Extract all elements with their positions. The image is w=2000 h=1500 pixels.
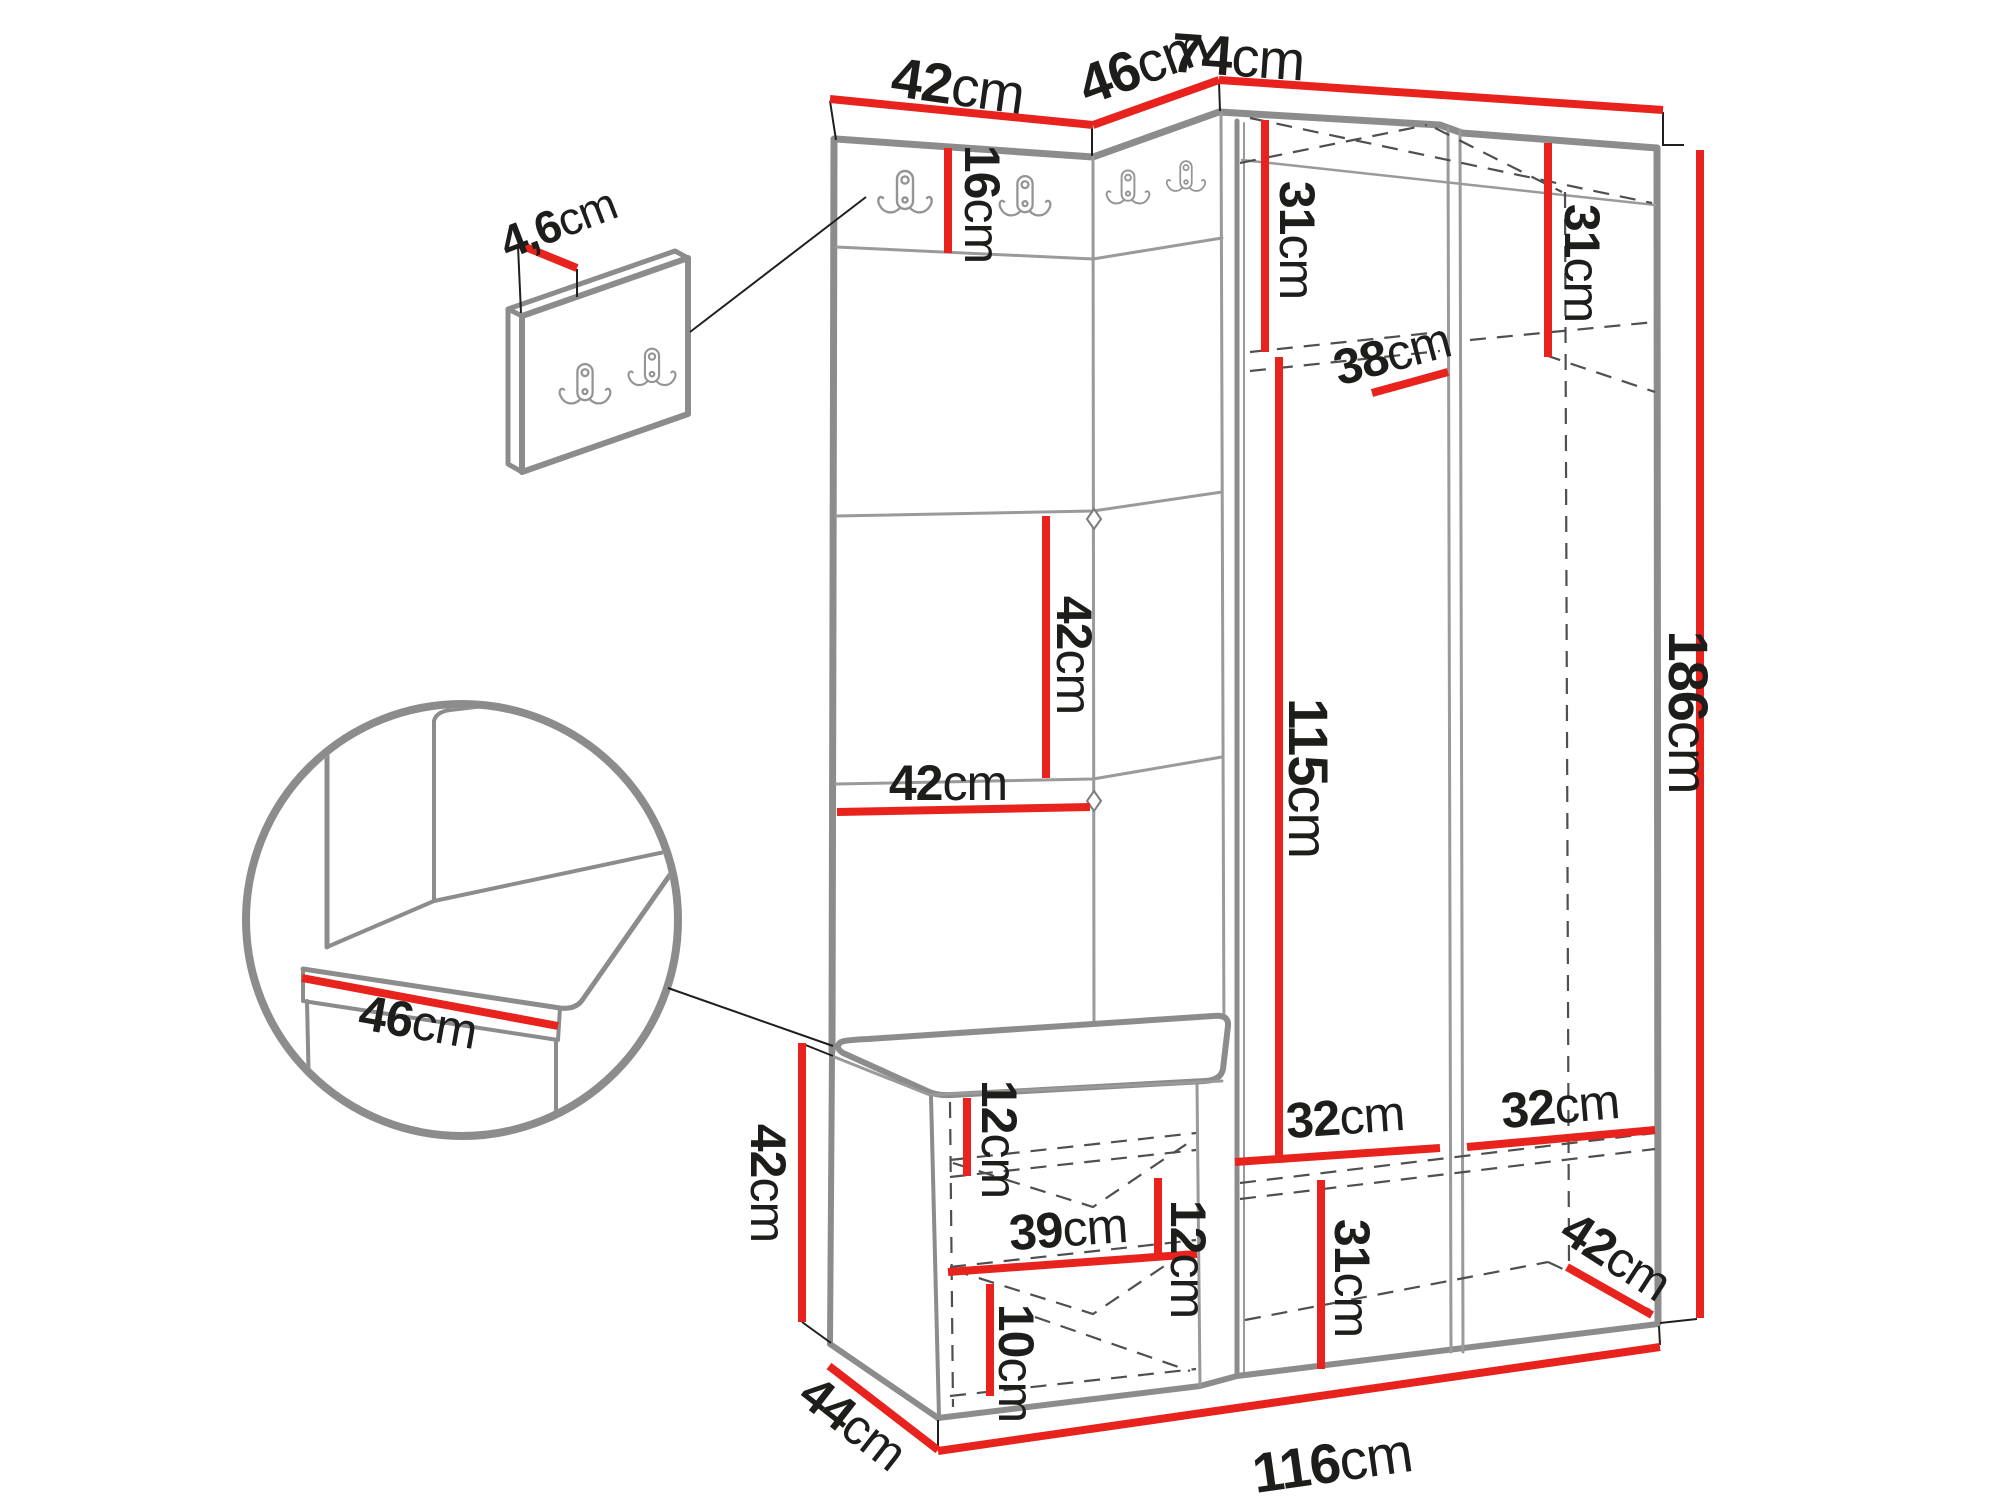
dimension-label-total-width: 116cm xyxy=(1248,1420,1415,1500)
dimension-label-hook-board-thickness: 4,6cm xyxy=(493,177,624,269)
corner-panel-right-edge xyxy=(1221,114,1224,1046)
dimension-label-bottom-left-width: 32cm xyxy=(1284,1085,1406,1149)
bench-hidden-floor-diagonal xyxy=(1035,1317,1190,1371)
hidden-shelf-right-top xyxy=(1470,322,1655,340)
coat-hook-icon xyxy=(1167,161,1205,191)
dimension-label-seat-shelf-offset: 12cm xyxy=(971,1080,1027,1198)
dimension-line-bottom-left-width xyxy=(1235,1148,1440,1162)
bench-left-back-edge xyxy=(830,1053,832,1344)
hidden-shelf-right-back xyxy=(1545,355,1655,392)
dimension-label-wardrobe-top-width: 74cm xyxy=(1169,20,1306,92)
dimension-label-hook-strip-height: 16cm xyxy=(954,145,1010,263)
dimension-label-hanging-height: 115cm xyxy=(1278,698,1341,858)
dimension-label-panel-tile-height: 42cm xyxy=(1046,596,1102,714)
detail-circle xyxy=(246,704,678,1136)
coat-hook-icon xyxy=(1107,170,1150,203)
callout-line xyxy=(690,197,866,332)
coat-hook-icon xyxy=(878,171,931,212)
dimension-label-bottom-right-width: 32cm xyxy=(1499,1073,1622,1139)
door-gap-right xyxy=(1460,130,1463,1352)
door-gap-left xyxy=(1448,128,1451,1352)
dimension-label-panel-top-width: 42cm xyxy=(888,45,1028,126)
dimension-label-total-height: 186cm xyxy=(1658,630,1721,793)
wardrobe-bottom-edge xyxy=(1237,1324,1658,1376)
dimension-label-bench-bottom-height: 10cm xyxy=(988,1304,1044,1422)
bench-hidden-vertical xyxy=(950,1102,953,1407)
dimension-label-bench-inner-width: 39cm xyxy=(1007,1197,1129,1261)
dimension-label-bottom-section-height: 31cm xyxy=(1324,1219,1380,1337)
dimension-label-right-shelf-height: 31cm xyxy=(1554,204,1610,322)
panel-seam-middle xyxy=(836,492,1222,516)
dimension-label-bench-shelf-gap: 12cm xyxy=(1160,1200,1216,1318)
callout-line xyxy=(668,988,833,1046)
panel-left-edge xyxy=(832,139,834,1051)
bench-corner-detail xyxy=(246,685,833,1136)
furniture-dimension-diagram: 42cm 46cm 74cm 4,6cm 16cm 31cm 31cm 38cm… xyxy=(0,0,2000,1500)
bench-front-fold xyxy=(931,1096,939,1417)
hook-board-front xyxy=(522,258,688,472)
dimension-label-left-shelf-height: 31cm xyxy=(1269,181,1325,299)
dimension-label-panel-front-width: 42cm xyxy=(889,755,1007,811)
hidden-floor-back xyxy=(1245,1262,1548,1320)
hook-strip-seam xyxy=(836,238,1222,259)
dimension-label-bench-height: 42cm xyxy=(740,1124,796,1242)
